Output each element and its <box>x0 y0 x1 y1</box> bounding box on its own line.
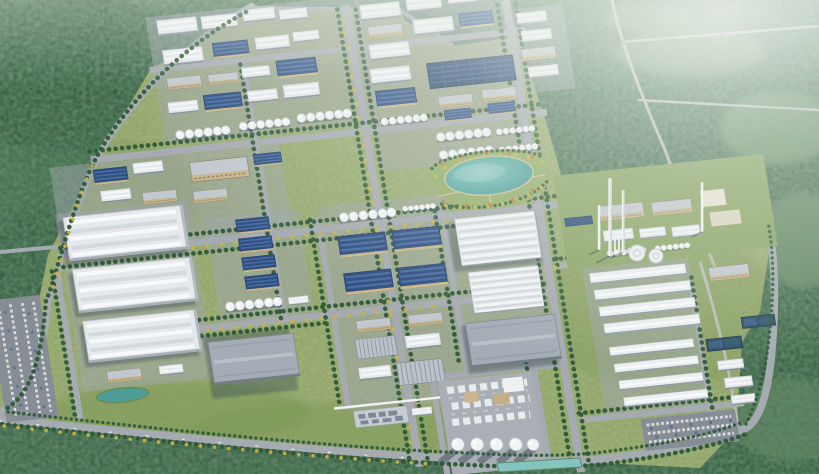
aerial-render-stage: Bird's-eye 3D rendering of a large indus… <box>0 0 819 474</box>
industrial-park-render: Bird's-eye 3D rendering of a large indus… <box>0 0 819 474</box>
atmosphere <box>0 0 819 474</box>
